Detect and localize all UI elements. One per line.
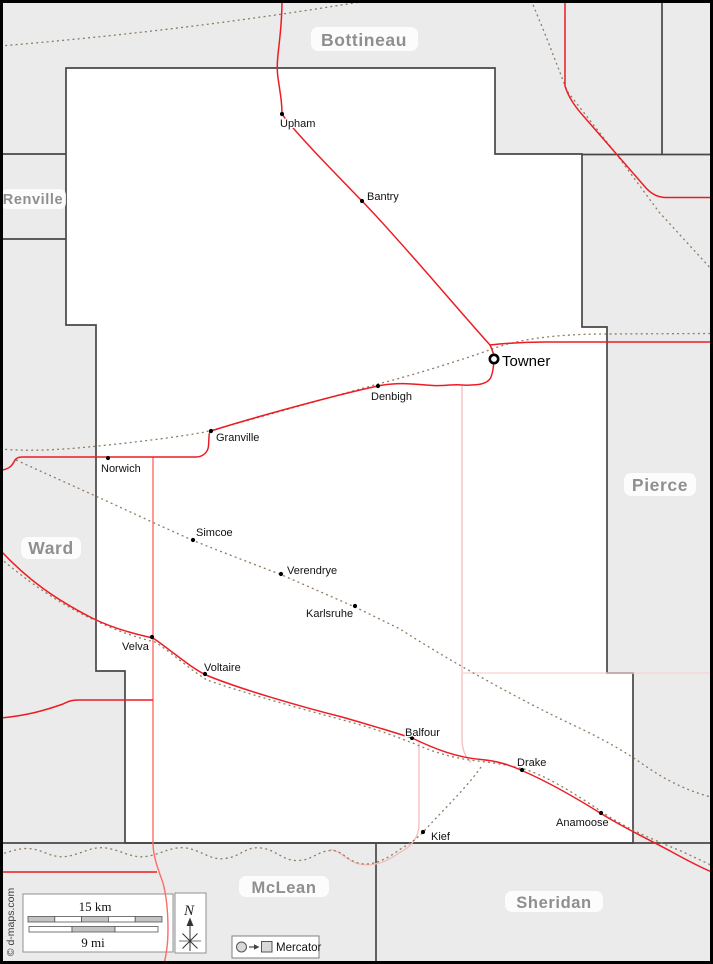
- city-dot: [353, 604, 357, 608]
- north-label: N: [183, 903, 195, 919]
- county-label-sheridan: Sheridan: [505, 891, 603, 912]
- city-voltaire: Voltaire: [203, 662, 241, 676]
- city-label: Drake: [517, 757, 546, 769]
- county-seat-ring-icon: [490, 355, 498, 363]
- city-balfour: Balfour: [405, 727, 440, 740]
- county-label-mclean: McLean: [239, 876, 329, 897]
- city-label: Granville: [216, 432, 259, 444]
- city-dot: [279, 572, 283, 576]
- city-dot: [280, 112, 284, 116]
- scale-mi-label: 9 mi: [81, 935, 105, 950]
- county-label-renville: Renville: [1, 189, 66, 209]
- label-text: McLean: [251, 879, 316, 897]
- map-canvas: 15 km 9 mi N: [0, 0, 713, 964]
- city-dot: [360, 199, 364, 203]
- city-dot: [599, 811, 603, 815]
- city-label: Balfour: [405, 727, 440, 739]
- county-label-ward: Ward: [21, 537, 81, 559]
- label-text: Ward: [28, 538, 74, 558]
- city-label: Upham: [280, 118, 315, 130]
- city-label: Simcoe: [196, 527, 233, 539]
- county-shape: [66, 68, 633, 843]
- city-dot: [150, 635, 154, 639]
- county-label-bottineau: Bottineau: [311, 27, 418, 51]
- label-text: Bottineau: [321, 30, 407, 50]
- city-label: Kief: [431, 831, 451, 843]
- city-dot: [191, 538, 195, 542]
- globe-circle-icon: [237, 942, 247, 952]
- label-text: Renville: [3, 192, 63, 208]
- city-label: Norwich: [101, 463, 141, 475]
- projection-legend: Mercator: [232, 936, 322, 958]
- city-label: Voltaire: [204, 662, 241, 674]
- county-label-pierce: Pierce: [624, 473, 696, 496]
- city-label: Verendrye: [287, 565, 337, 577]
- scale-km-bar: [28, 917, 162, 923]
- county-seat-label: Towner: [502, 353, 550, 370]
- city-label: Denbigh: [371, 391, 412, 403]
- city-label: Velva: [122, 641, 150, 653]
- scale-bar: 15 km 9 mi: [23, 894, 173, 952]
- city-dot: [421, 830, 425, 834]
- map-square-icon: [262, 942, 273, 953]
- projection-label: Mercator: [276, 942, 322, 954]
- label-text: Pierce: [632, 475, 688, 495]
- scale-mi-bar: [29, 927, 158, 933]
- city-dot: [209, 429, 213, 433]
- north-arrow: N: [175, 893, 206, 953]
- label-text: Sheridan: [516, 894, 591, 912]
- city-label: Karlsruhe: [306, 608, 353, 620]
- city-label: Anamoose: [556, 817, 609, 829]
- city-dot: [376, 384, 380, 388]
- city-granville: Granville: [209, 429, 260, 444]
- county-map: 15 km 9 mi N: [0, 0, 713, 964]
- city-verendrye: Verendrye: [279, 565, 337, 577]
- city-label: Bantry: [367, 191, 399, 203]
- scale-km-label: 15 km: [79, 899, 112, 914]
- city-dot: [106, 456, 110, 460]
- credit-text: © d-maps.com: [5, 888, 17, 957]
